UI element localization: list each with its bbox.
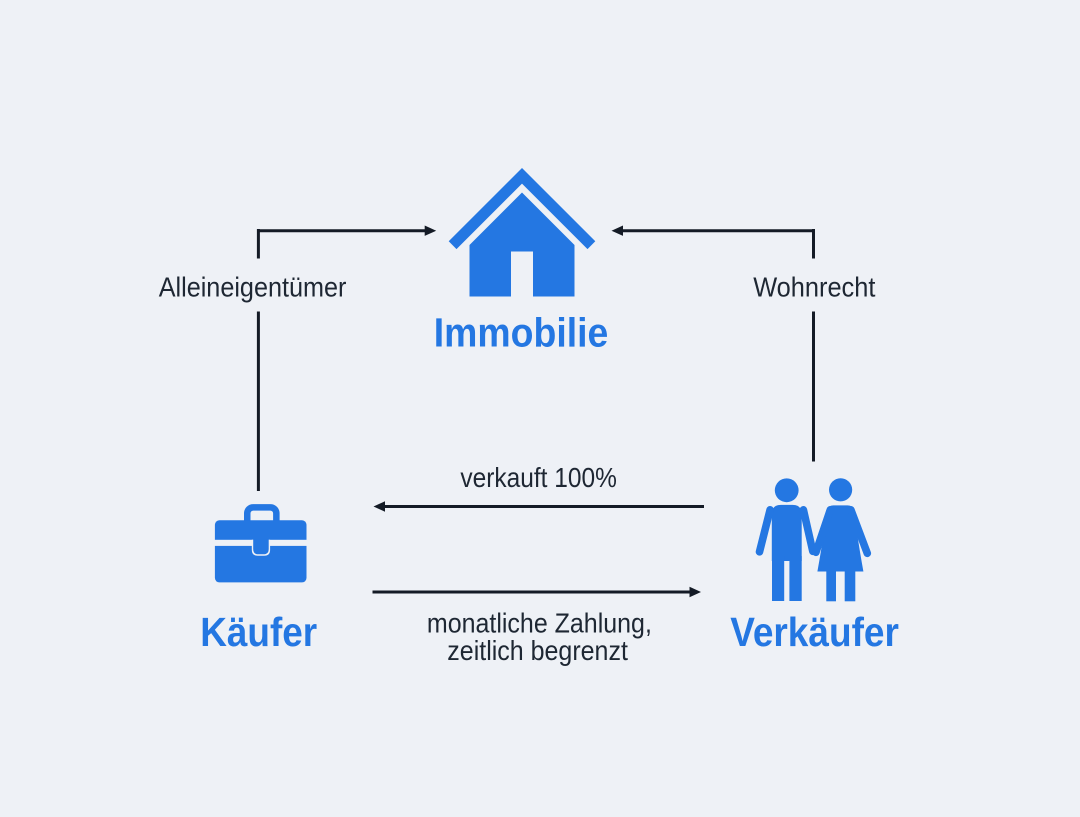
svg-text:Käufer: Käufer bbox=[200, 609, 317, 655]
svg-text:monatliche Zahlung,: monatliche Zahlung, bbox=[427, 608, 652, 639]
svg-text:Verkäufer: Verkäufer bbox=[730, 609, 899, 655]
svg-text:Immobilie: Immobilie bbox=[434, 309, 609, 355]
svg-text:Alleineigentümer: Alleineigentümer bbox=[159, 271, 347, 302]
svg-text:verkauft 100%: verkauft 100% bbox=[460, 462, 617, 493]
svg-text:Wohnrecht: Wohnrecht bbox=[753, 271, 876, 302]
svg-text:zeitlich begrenzt: zeitlich begrenzt bbox=[447, 635, 628, 666]
